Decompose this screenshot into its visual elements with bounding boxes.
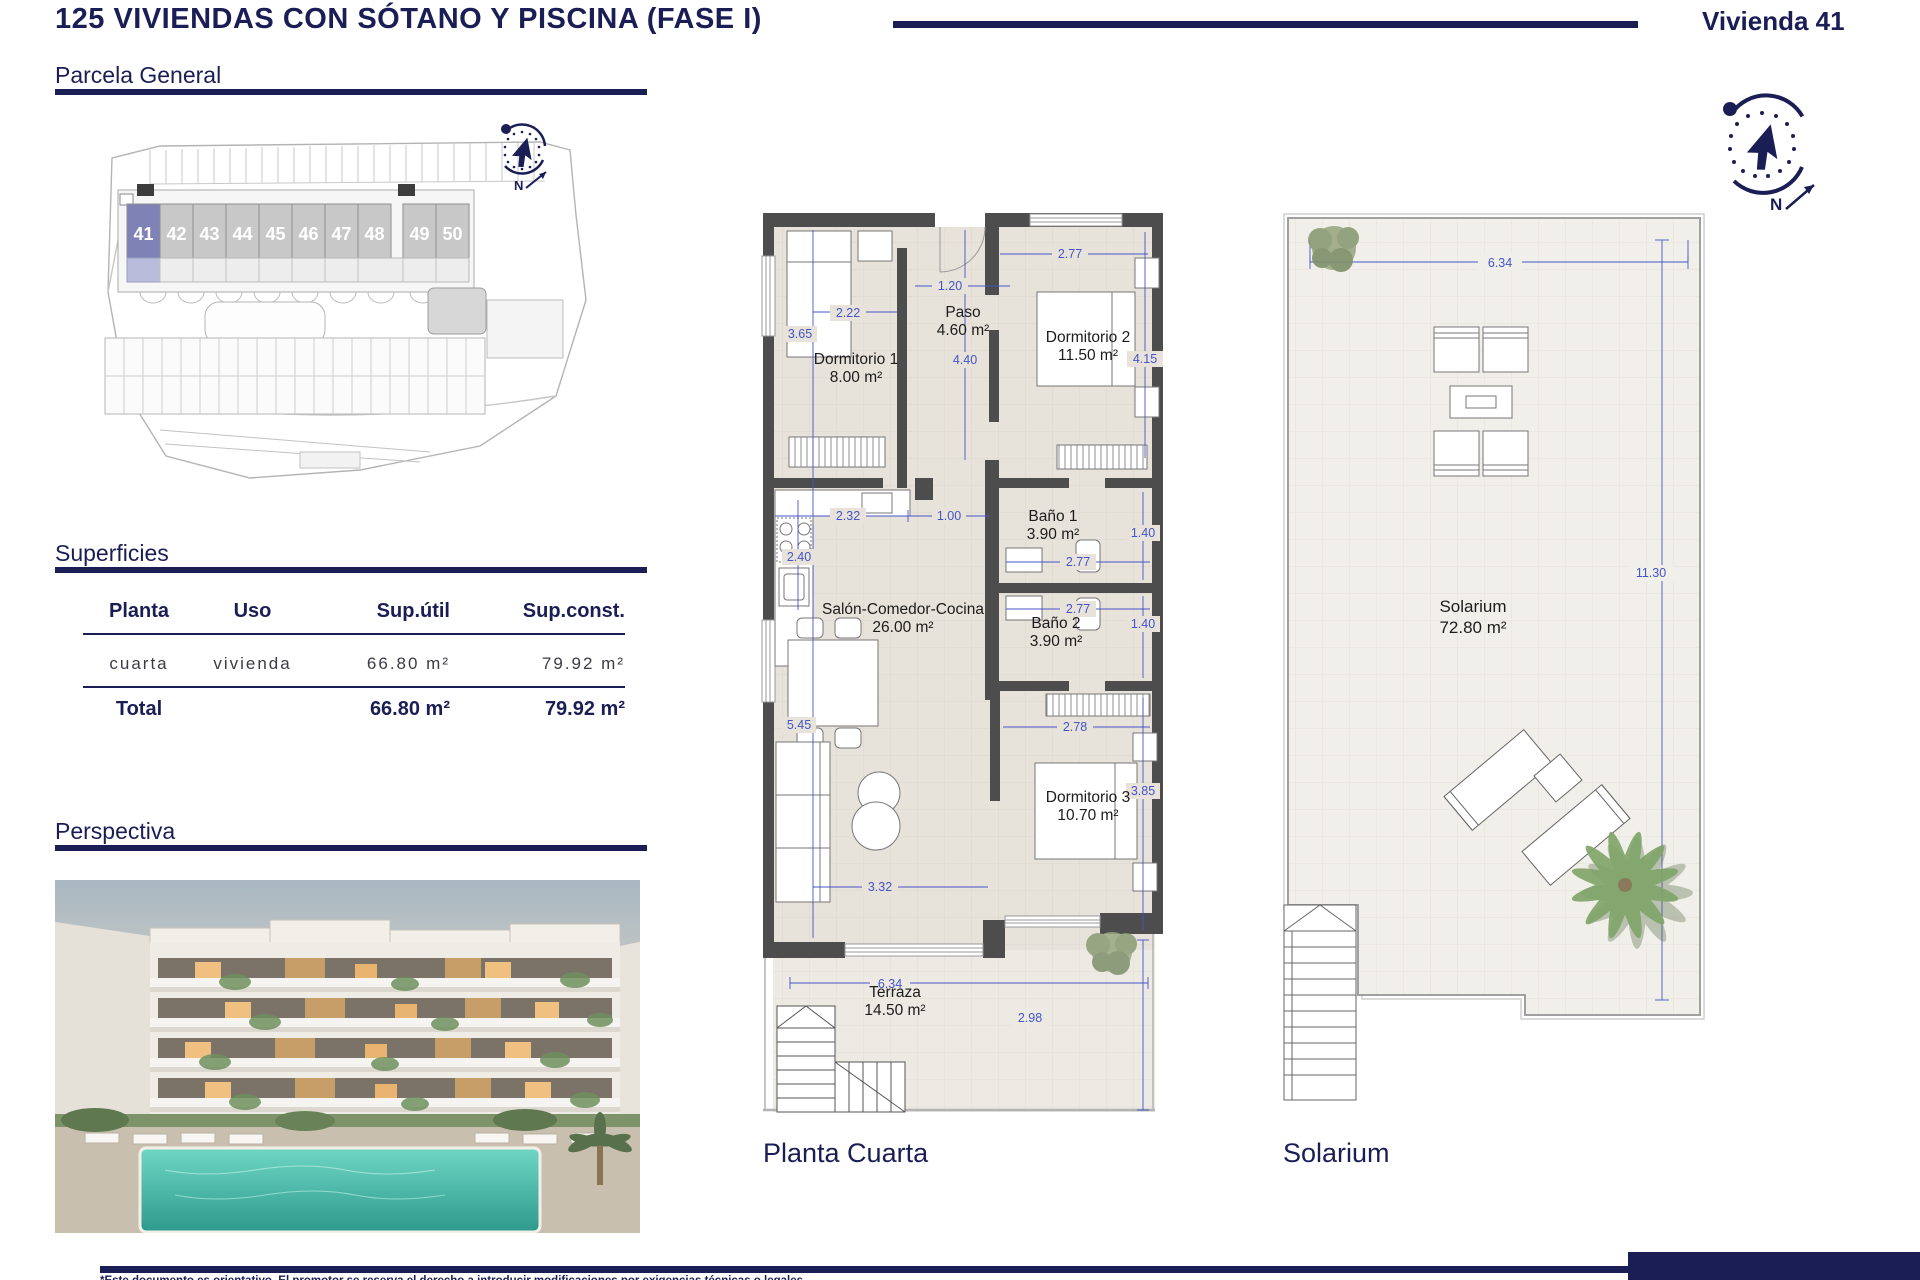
room-name-dorm2: Dormitorio 2 — [1046, 329, 1130, 346]
unit-reference: Vivienda 41 — [1702, 6, 1845, 37]
dim-label: 2.78 — [1063, 720, 1087, 734]
table-row: cuarta vivienda 66.80 m² 79.92 m² — [83, 635, 625, 674]
unit-numbers: 41 42 43 44 45 46 47 48 49 50 — [133, 224, 462, 244]
room-name-paso: Paso — [945, 304, 980, 321]
dim-label: 2.22 — [836, 306, 860, 320]
solarium-stairs — [1284, 905, 1356, 1100]
unit-label: 49 — [409, 224, 429, 244]
cell-planta: cuarta — [83, 654, 195, 674]
dim-label: 2.77 — [1058, 247, 1082, 261]
col-header-sup-util: Sup.útil — [310, 600, 450, 623]
col-header-uso: Uso — [195, 600, 310, 623]
page-title: 125 VIVIENDAS CON SÓTANO Y PISCINA (FASE… — [55, 3, 762, 36]
footer-bar — [100, 1266, 1628, 1273]
room-area-terraza: 14.50 m² — [864, 1002, 925, 1019]
glass-door — [1005, 916, 1100, 927]
apartment-building — [55, 920, 640, 1132]
dim-label: 2.40 — [787, 550, 811, 564]
building-block: 41 42 43 44 45 46 47 48 49 50 — [118, 184, 474, 303]
dim-label: 2.98 — [1018, 1011, 1042, 1025]
section-title-parcela: Parcela General — [55, 62, 221, 89]
room-name-solarium: Solarium — [1439, 597, 1506, 616]
solarium-plan: 6.34 11.30 Solarium 72.80 m² — [1270, 180, 1720, 1130]
room-area-salon: 26.00 m² — [872, 619, 933, 636]
dim-label: 5.45 — [787, 718, 811, 732]
unit-label: 44 — [232, 224, 252, 244]
table-header-row: Planta Uso Sup.útil Sup.const. — [83, 600, 625, 623]
room-area-dorm3: 10.70 m² — [1057, 807, 1118, 824]
unit-label: 46 — [298, 224, 318, 244]
dim-label: 3.65 — [788, 327, 812, 341]
side-table — [852, 802, 900, 850]
room-name-bano2: Baño 2 — [1031, 615, 1080, 632]
section-rule-parcela — [55, 89, 647, 95]
stair-core-icon — [398, 184, 415, 196]
room-area-bano2: 3.90 m² — [1030, 633, 1083, 650]
section-title-perspectiva: Perspectiva — [55, 818, 175, 845]
unit-label: 42 — [166, 224, 186, 244]
building-gray-block — [428, 288, 486, 334]
room-name-dorm1: Dormitorio 1 — [814, 351, 898, 368]
dim-label: 3.32 — [868, 880, 892, 894]
perspective-render — [55, 880, 640, 1233]
room-name-terraza: Terraza — [869, 984, 921, 1001]
balcony-scallops — [140, 292, 436, 303]
compass-arrow — [1743, 120, 1787, 175]
wardrobe-dorm3 — [1046, 694, 1150, 716]
table-total-row: Total 66.80 m² 79.92 m² — [83, 688, 625, 721]
unit-label: 45 — [265, 224, 285, 244]
dim-label: 1.40 — [1131, 617, 1155, 631]
glass-door — [845, 944, 983, 956]
room-area-dorm2: 11.50 m² — [1058, 347, 1118, 364]
title-rule — [893, 21, 1638, 28]
dim-label: 2.77 — [1066, 555, 1090, 569]
room-area-solarium: 72.80 m² — [1439, 618, 1506, 637]
total-sup-const: 79.92 m² — [450, 698, 625, 721]
compass-icon-large: N — [1698, 83, 1830, 215]
room-area-bano1: 3.90 m² — [1027, 526, 1080, 543]
compass-icon: N — [501, 124, 546, 193]
col-header-sup-const: Sup.const. — [450, 600, 625, 623]
window — [1030, 214, 1122, 226]
footer-accent-block — [1628, 1252, 1920, 1280]
compass-north-label: N — [514, 178, 523, 193]
solarium-caption: Solarium — [1283, 1138, 1390, 1169]
sofa — [776, 742, 830, 902]
section-rule-superficies — [55, 567, 647, 573]
window — [762, 256, 775, 336]
plant — [1308, 226, 1359, 272]
section-rule-perspectiva — [55, 845, 647, 851]
dim-label: 2.77 — [1066, 602, 1090, 616]
swimming-pool — [140, 1148, 540, 1232]
dim-label: 11.30 — [1636, 566, 1666, 580]
dim-label: 3.85 — [1131, 784, 1155, 798]
dim-label: 4.15 — [1133, 352, 1157, 366]
unit-label: 50 — [442, 224, 462, 244]
cell-sup-const: 79.92 m² — [450, 654, 625, 674]
col-header-planta: Planta — [83, 600, 195, 623]
unit-label: 47 — [331, 224, 351, 244]
cell-uso: vivienda — [195, 654, 310, 674]
dim-label: 2.32 — [836, 509, 860, 523]
total-label: Total — [83, 698, 195, 721]
dim-label: 1.00 — [937, 509, 961, 523]
terrace-41-highlighted — [127, 258, 160, 282]
window — [762, 620, 775, 702]
site-structures — [105, 288, 563, 468]
floorplan-caption: Planta Cuarta — [763, 1138, 928, 1169]
surfaces-table: Planta Uso Sup.útil Sup.const. cuarta vi… — [83, 600, 625, 721]
cell-sup-util: 66.80 m² — [310, 654, 450, 674]
floor-plan: 3.65 2.22 1.20 4.40 2.77 4.15 2.32 1.00 … — [620, 170, 1180, 1130]
dim-label: 1.40 — [1131, 526, 1155, 540]
section-title-superficies: Superficies — [55, 540, 169, 567]
terrace-strip — [127, 258, 469, 282]
room-area-paso: 4.60 m² — [937, 322, 990, 339]
stair-core-icon — [137, 184, 154, 196]
total-sup-util: 66.80 m² — [310, 698, 450, 721]
site-plan: 41 42 43 44 45 46 47 48 49 50 — [80, 105, 650, 530]
foreground — [55, 1108, 640, 1233]
wardrobe-dorm2 — [1057, 445, 1147, 469]
footer-disclaimer: *Este documento es orientativo. El promo… — [100, 1275, 806, 1280]
dim-label: 4.40 — [953, 353, 977, 367]
dim-label: 1.20 — [938, 279, 962, 293]
wardrobe-dorm1 — [789, 437, 885, 467]
plan-sheet: 125 VIVIENDAS CON SÓTANO Y PISCINA (FASE… — [0, 0, 1920, 1280]
parking-strips — [150, 142, 545, 184]
room-name-dorm3: Dormitorio 3 — [1046, 789, 1130, 806]
room-name-bano1: Baño 1 — [1028, 508, 1077, 525]
room-area-dorm1: 8.00 m² — [830, 369, 883, 386]
unit-label: 41 — [133, 224, 153, 244]
compass-north-label: N — [1770, 195, 1782, 214]
unit-label: 43 — [199, 224, 219, 244]
unit-label: 48 — [364, 224, 384, 244]
room-name-salon: Salón-Comedor-Cocina — [822, 601, 984, 618]
dim-label: 6.34 — [1488, 256, 1512, 270]
